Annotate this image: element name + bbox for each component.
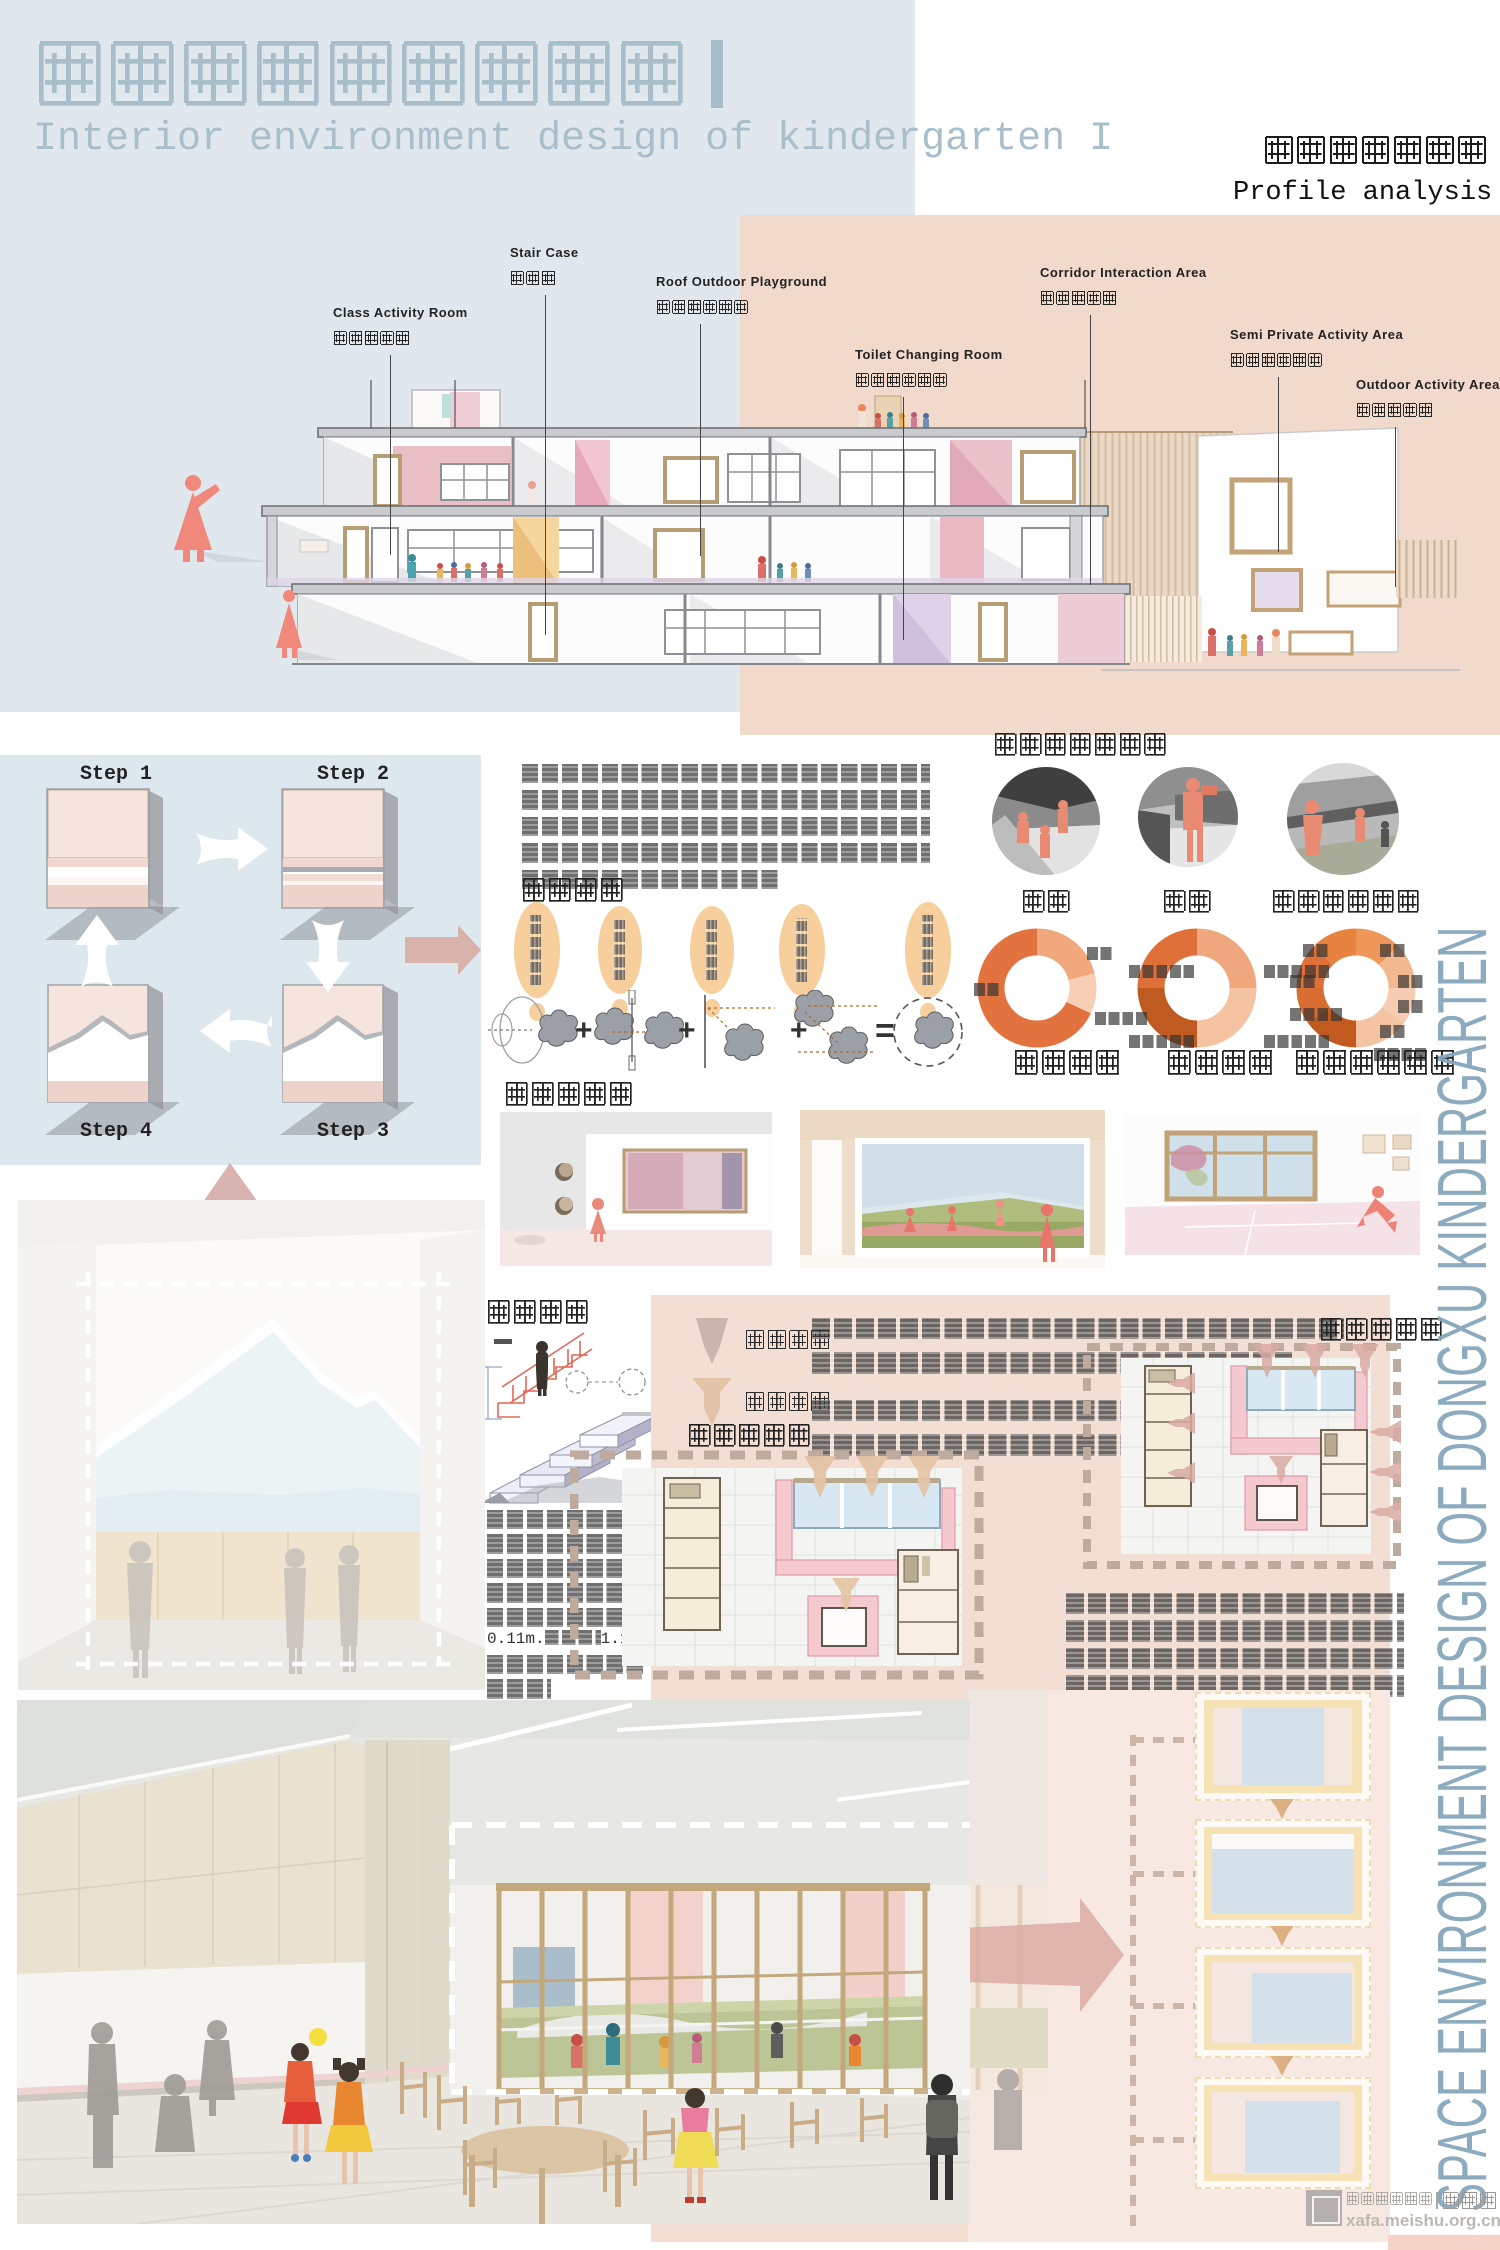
svg-text:+: + bbox=[575, 1014, 593, 1047]
svg-text:=: = bbox=[875, 1012, 895, 1050]
svg-text:+: + bbox=[678, 1014, 696, 1047]
